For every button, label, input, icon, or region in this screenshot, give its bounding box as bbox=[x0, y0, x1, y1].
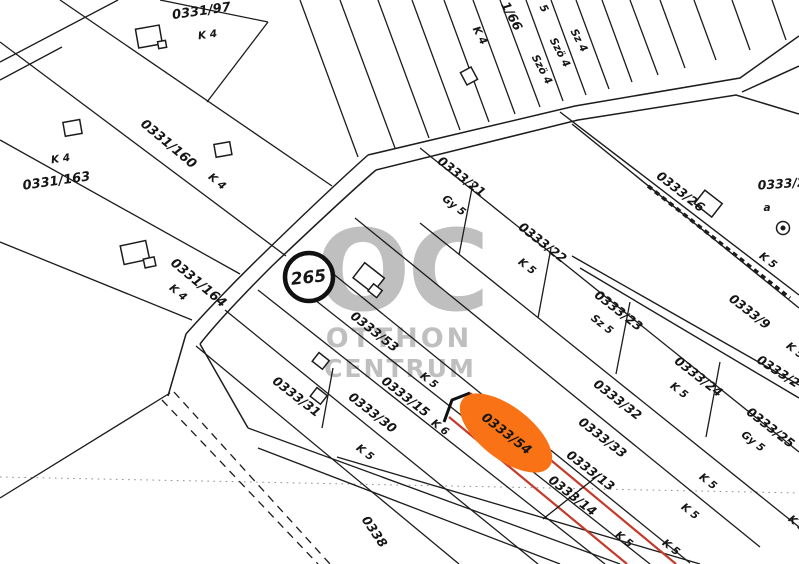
grade-label: Szö 4 bbox=[547, 36, 573, 70]
parcel-label: 0333/2 bbox=[757, 174, 799, 192]
grade-label: K 4 bbox=[206, 171, 228, 192]
highlighted-parcel[interactable]: 0333/54 bbox=[444, 379, 676, 564]
parcel-label: 0333/33 bbox=[576, 414, 630, 461]
grade-label: K 6 bbox=[429, 417, 451, 438]
parcel-label: 0331/163 bbox=[22, 169, 92, 193]
grade-label: Sz 5 bbox=[588, 312, 615, 337]
watermark-oc-text: OC bbox=[315, 207, 486, 337]
point-symbol-dot-icon bbox=[781, 226, 785, 230]
grade-label: K 5 bbox=[697, 471, 719, 492]
map-marker-265: 265 bbox=[285, 253, 333, 301]
grade-label: K 5 bbox=[660, 537, 682, 558]
watermark-centrum-text: CENTRUM bbox=[324, 354, 476, 383]
building-icon bbox=[63, 120, 82, 137]
grade-label: K 4 bbox=[197, 28, 218, 43]
building-icon bbox=[214, 142, 232, 158]
grade-label: K 5 bbox=[354, 442, 376, 463]
grade-label: a bbox=[763, 202, 770, 214]
parcel-label: 0333/26 bbox=[654, 168, 708, 215]
grade-label: Szö 4 bbox=[529, 53, 555, 87]
grade-label: K 5 bbox=[679, 501, 701, 522]
parcel-label: 0331/160 bbox=[137, 117, 199, 172]
grade-label: K 4 bbox=[167, 282, 189, 303]
grade-label: 5 bbox=[537, 3, 551, 15]
building-icon bbox=[143, 257, 156, 268]
parcel-label: 0333/9 bbox=[726, 291, 773, 333]
grade-label: K 5 bbox=[757, 250, 779, 271]
grade-label: Sz 4 bbox=[568, 27, 590, 54]
parcel-label: 0331/97 bbox=[171, 0, 232, 23]
cadastral-map: OC OTTHON CENTRUM bbox=[0, 0, 799, 564]
marker-value: 265 bbox=[290, 266, 327, 290]
grade-label: K 4 bbox=[50, 152, 71, 167]
parcel-label: 1/66 bbox=[498, 0, 526, 33]
parcel-label: 0338 bbox=[359, 513, 391, 550]
parcel-label: 0333/21 bbox=[435, 153, 489, 200]
grade-label: K 5 bbox=[613, 529, 635, 550]
grade-label: K 5 bbox=[668, 380, 690, 401]
watermark-logo: OC OTTHON CENTRUM bbox=[315, 207, 486, 383]
dotted-survey-line bbox=[0, 477, 799, 493]
grade-label: K 5 bbox=[516, 256, 538, 277]
grade-label: K 5 bbox=[784, 340, 799, 361]
grade-label: K 4 bbox=[470, 24, 490, 47]
building-icon bbox=[158, 40, 167, 48]
grade-label: Gy 5 bbox=[739, 429, 767, 455]
grade-label: K 5 bbox=[786, 513, 799, 534]
